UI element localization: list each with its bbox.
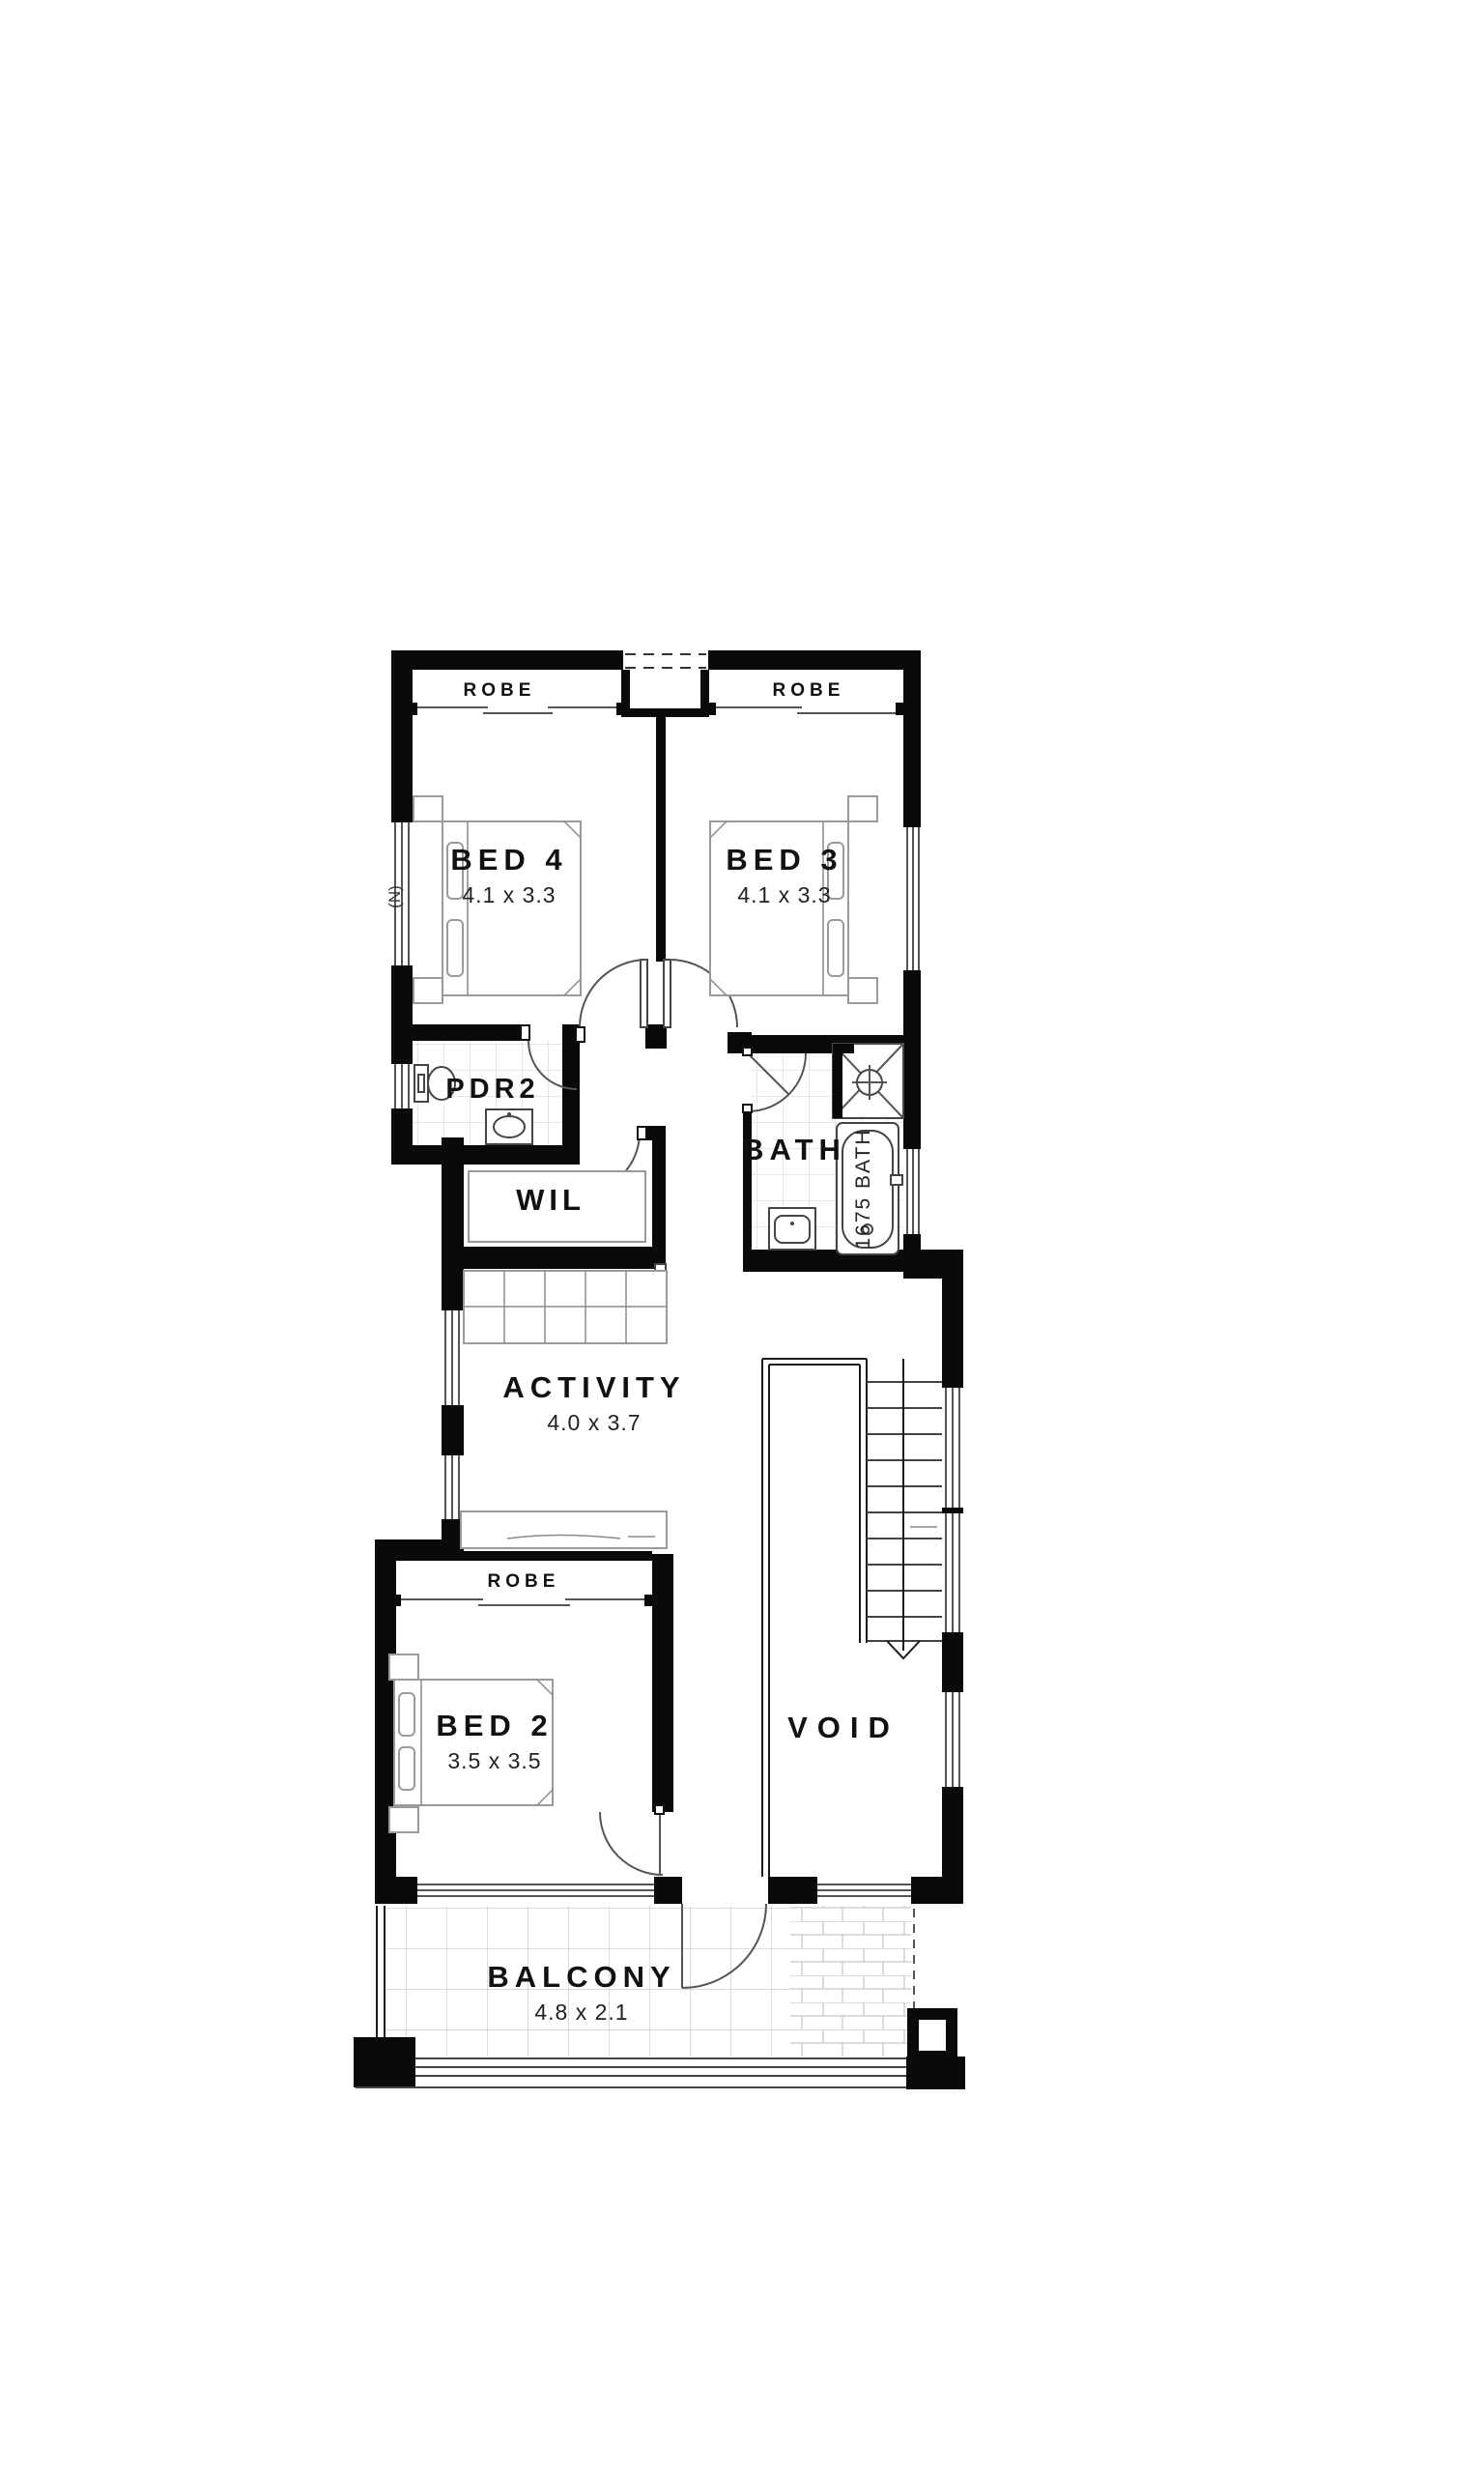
bathtub-label: 1675 BATH (852, 1129, 874, 1250)
bed2-label: BED 2 (436, 1709, 553, 1742)
bed2-west-wall (375, 1554, 396, 1904)
top-wall-left (391, 650, 623, 670)
right-wall (903, 976, 921, 1143)
bath-basin (769, 1208, 815, 1250)
bath-label: BATH (742, 1133, 846, 1166)
wil-south-wall (442, 1247, 666, 1269)
window-bed2-south (417, 1884, 654, 1896)
door-bed2 (600, 1812, 663, 1875)
floorplan-page: ROBE ROBE BED 4 4.1 x 3.3 BED 3 4.1 x 3.… (0, 0, 1484, 2474)
void-label: VOID (787, 1711, 899, 1744)
balcony-pillar-core (919, 2020, 946, 2051)
robe-bed2-label: ROBE (488, 1571, 560, 1592)
floorplan-drawing: ROBE ROBE BED 4 4.1 x 3.3 BED 3 4.1 x 3.… (0, 0, 1484, 2474)
bed3-dims: 4.1 x 3.3 (737, 882, 831, 907)
top-wall-right (708, 650, 921, 670)
pdr2-east-wall (562, 1024, 580, 1165)
pdr2-south-wall (391, 1145, 580, 1165)
activity-desk (461, 1511, 667, 1548)
robe-slider-bed2 (393, 1595, 652, 1606)
pdr2-north-wall (391, 1024, 528, 1041)
pdr2-label: PDR2 (445, 1074, 539, 1105)
bed2-dims: 3.5 x 3.5 (447, 1748, 541, 1773)
balcony-dims: 4.8 x 2.1 (534, 1999, 628, 2025)
right-wall-lower (942, 1279, 963, 1382)
bed4-dims: 4.1 x 3.3 (462, 882, 556, 907)
activity-dims: 4.0 x 3.7 (547, 1410, 641, 1435)
staircase (762, 1359, 942, 1877)
balcony-rail-south (356, 2058, 963, 2087)
robe-bed3-label: ROBE (773, 680, 845, 701)
activity-label: ACTIVITY (502, 1370, 685, 1404)
shower (833, 1044, 903, 1118)
balcony-post-sw (354, 2037, 415, 2087)
robe-slider-bed3 (708, 703, 903, 715)
right-wall (903, 650, 921, 821)
window-activity-west-upper (440, 1305, 466, 1411)
window-bed3-east (901, 821, 925, 976)
robe-bed4-label: ROBE (464, 680, 536, 701)
right-wall-lower (942, 1638, 963, 1686)
bed2-bed (389, 1654, 553, 1832)
bed4-label: BED 4 (450, 843, 567, 877)
window-void-south (817, 1884, 911, 1896)
window-void-east (940, 1686, 965, 1793)
bed2-east-wall (652, 1554, 673, 1812)
bottom-wall (768, 1877, 817, 1904)
window-pdr2-west (389, 1058, 414, 1114)
left-wall-mid (442, 1411, 464, 1450)
bottom-wall (654, 1877, 682, 1904)
left-wall (391, 971, 413, 1058)
left-wall (391, 650, 413, 817)
wil-label: WIL (516, 1183, 585, 1217)
window-stairs-east (940, 1382, 965, 1638)
activity-unit (464, 1271, 667, 1343)
niche-bottom-wall (621, 708, 709, 717)
porch-roof-tiles (790, 1906, 911, 2057)
window-bath-east (903, 1143, 923, 1240)
north-marker: (N) (385, 885, 404, 908)
pdr2-basin (486, 1109, 532, 1144)
balcony-label: BALCONY (487, 1960, 675, 1994)
door-bed4 (580, 960, 647, 1027)
robe-slider-bed4 (410, 703, 624, 715)
bed3-bed4-dividing-wall (656, 717, 666, 962)
bottom-wall (911, 1877, 963, 1904)
bed2-robe-north-wall (393, 1551, 652, 1561)
bottom-wall (375, 1877, 417, 1904)
bed3-label: BED 3 (726, 843, 842, 877)
